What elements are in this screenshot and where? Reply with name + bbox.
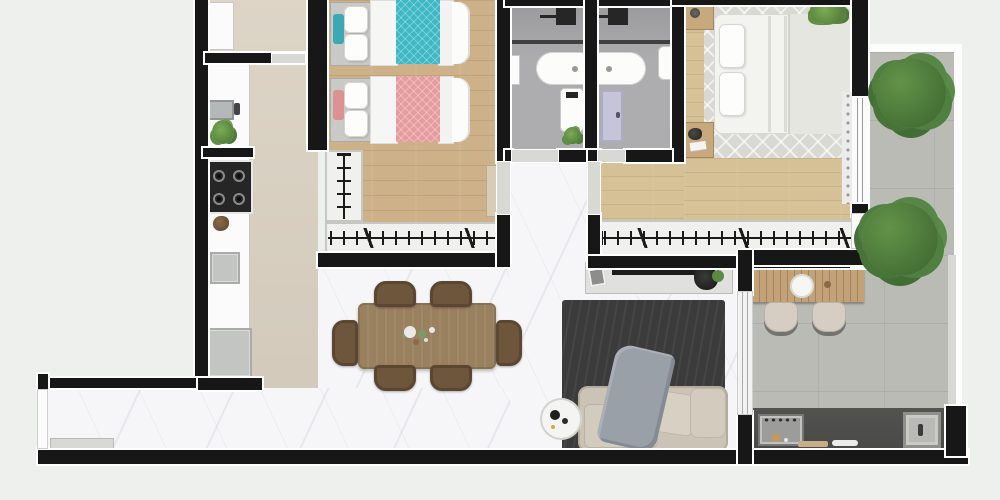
bathroom2-doorway	[598, 150, 625, 162]
kitchen-faucet	[234, 103, 240, 115]
door-handle	[616, 112, 620, 118]
bed2-pillow	[344, 110, 368, 137]
wall-bath-bottom-a	[505, 150, 512, 162]
bar-stool	[812, 302, 846, 332]
kitchen-plant	[212, 120, 234, 144]
shower-arm	[598, 15, 610, 18]
garden-border-top	[866, 44, 962, 52]
duvet-fold	[768, 16, 771, 132]
wall-living-terrace-a	[738, 250, 752, 294]
duvet-fold	[784, 16, 787, 132]
bed1-foot-ruffle	[452, 2, 470, 64]
wall-master-right-a	[852, 0, 868, 100]
burner	[233, 170, 245, 182]
dining-table	[358, 303, 496, 369]
wall-living-terrace-b	[738, 412, 752, 464]
vanity-drain	[606, 66, 612, 72]
wall-kitchen-bottom	[195, 378, 262, 390]
wall-bathroom2-right	[672, 0, 684, 162]
bathroom1-shelf	[511, 55, 520, 85]
kitchen-sink	[208, 100, 234, 120]
wall-terrace-top	[738, 250, 868, 265]
entry-door	[38, 390, 47, 448]
shower-head	[556, 8, 576, 25]
serving-dish	[832, 440, 858, 446]
wall-bathroom-divider	[585, 0, 597, 150]
dining-chair	[332, 320, 358, 366]
dining-chair	[430, 365, 472, 391]
vanity-drain	[572, 66, 578, 72]
entry-bench	[50, 438, 114, 449]
pink-accent-pillow	[333, 90, 344, 120]
bar-stool	[764, 302, 798, 332]
service-cabinet	[208, 2, 234, 50]
table-centerpiece	[404, 326, 416, 338]
wall-entry-cap-top	[38, 374, 48, 390]
bathroom1-doorway	[512, 150, 558, 162]
hangers	[602, 228, 852, 248]
bed1-pillow	[344, 34, 368, 61]
picture-frame	[588, 267, 607, 288]
wall-kitchen-mid	[203, 148, 253, 157]
terrace-railing	[948, 255, 956, 407]
cooktop	[207, 162, 251, 212]
wall-terrace-corner	[946, 406, 966, 456]
master-pillow	[719, 24, 745, 68]
bedroom2-door-leaf	[487, 166, 497, 216]
nightstand	[684, 122, 714, 158]
wall-bath-bottom-c	[625, 150, 672, 162]
dining-chair	[374, 281, 416, 307]
bed1-mattress	[370, 0, 398, 66]
shower-glass-partition	[598, 40, 670, 44]
burner	[213, 193, 225, 205]
tree	[862, 202, 938, 276]
tree	[876, 58, 946, 128]
bed1-pillow	[344, 6, 368, 33]
wall-hall-top	[46, 378, 196, 388]
toilet-flush-plate	[566, 92, 578, 98]
dining-chair	[374, 365, 416, 391]
bed2-pillow	[344, 82, 368, 109]
service-doorway	[272, 54, 305, 63]
bar-knob	[824, 281, 831, 288]
hanger-rail	[336, 153, 352, 219]
bed2-mattress	[370, 76, 398, 144]
dining-chair	[430, 281, 472, 307]
wall-outer-bottom	[38, 450, 968, 464]
shower-head	[608, 8, 628, 25]
nightstand-decor	[688, 128, 702, 140]
counter-decor	[213, 216, 229, 231]
barbecue-grill	[758, 414, 804, 446]
bathroom1-plant	[564, 127, 581, 144]
curtain	[842, 92, 852, 204]
refrigerator	[206, 328, 252, 378]
burner	[233, 193, 245, 205]
burner	[213, 170, 225, 182]
sofa-cushion	[690, 388, 726, 438]
wall-master-hall-b	[588, 214, 600, 258]
console-plant	[712, 270, 724, 282]
bedroom2-doorway	[497, 162, 510, 214]
bed2-pink-blanket	[396, 76, 440, 142]
oven	[210, 252, 240, 284]
hangers	[328, 228, 502, 248]
terrace-sliding-door	[738, 292, 752, 414]
bar-round-basin	[790, 274, 814, 298]
shower-glass-partition	[512, 40, 584, 44]
wall-bedroom2-right-lower	[497, 214, 510, 267]
bed1-teal-blanket	[396, 0, 440, 64]
wall-bedroom2-right-upper	[497, 0, 510, 162]
bed2-foot-ruffle	[452, 78, 470, 142]
master-suite-doorway	[588, 162, 600, 214]
teal-accent-pillow	[333, 14, 344, 44]
nightstand-decor	[690, 8, 700, 18]
wall-master-top	[672, 0, 868, 5]
master-window	[852, 98, 868, 202]
counter-decor-items	[772, 434, 780, 442]
round-side-table	[540, 398, 582, 440]
shower-arm	[540, 15, 558, 18]
toilet	[658, 46, 671, 80]
wall-bedroom2-left	[308, 0, 327, 150]
dining-chair	[496, 320, 522, 366]
floor-plan	[0, 0, 1000, 500]
cutting-board	[798, 441, 828, 447]
master-pillow	[719, 72, 745, 116]
wall-bedroom2-bottom	[318, 253, 510, 267]
side-table-decor	[550, 410, 560, 420]
terrace-sink-faucet	[918, 424, 923, 436]
